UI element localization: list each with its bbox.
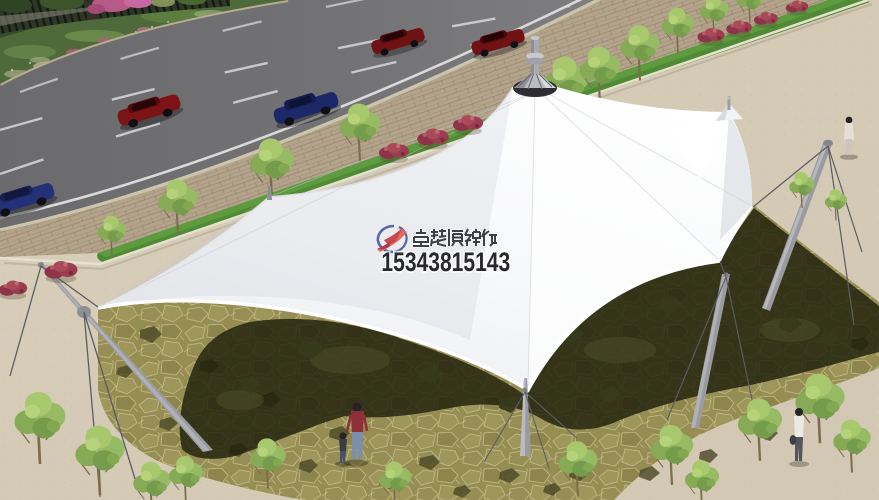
svg-text:15343815143: 15343815143 — [381, 248, 510, 278]
